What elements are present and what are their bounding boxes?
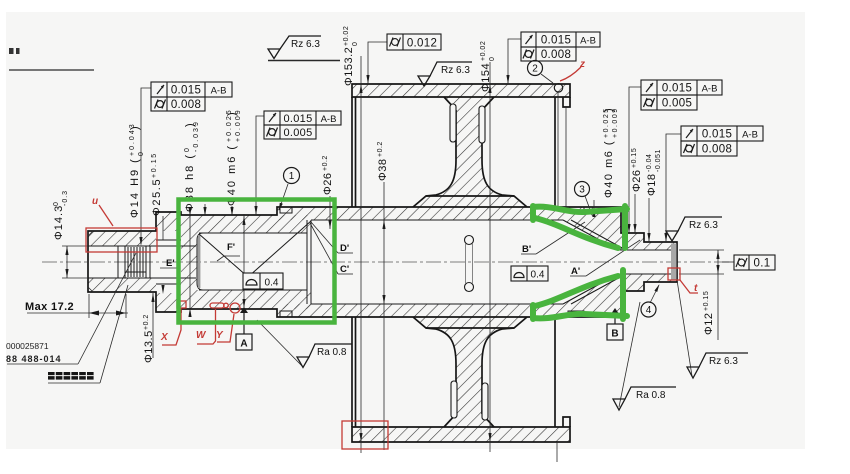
svg-text:0.015: 0.015: [283, 113, 312, 125]
svg-text:Rz 6.3: Rz 6.3: [689, 220, 718, 231]
svg-text:0: 0: [53, 201, 60, 206]
svg-text:Ra 0.8: Ra 0.8: [636, 390, 666, 401]
svg-text:Φ14 H9 (: Φ14 H9 (: [129, 157, 141, 218]
svg-text:X: X: [160, 332, 169, 343]
svg-text:2: 2: [532, 64, 538, 75]
svg-text:Φ153.2: Φ153.2: [343, 47, 355, 86]
svg-text:Max 17.2: Max 17.2: [25, 301, 74, 313]
svg-text:): ): [184, 121, 196, 127]
svg-text:Φ25.5: Φ25.5: [151, 178, 163, 216]
svg-text:Ra 0.8: Ra 0.8: [317, 347, 347, 358]
svg-text:0.012: 0.012: [407, 38, 437, 50]
svg-text:E': E': [166, 258, 175, 269]
svg-text:Φ26: Φ26: [322, 172, 334, 195]
svg-text:0: 0: [184, 146, 191, 152]
svg-text:Φ40 m6 (: Φ40 m6 (: [226, 144, 238, 206]
svg-text:+0.15: +0.15: [703, 291, 710, 311]
svg-text:0.008: 0.008: [541, 49, 571, 61]
svg-text:u: u: [92, 196, 98, 207]
svg-text:0.015: 0.015: [171, 85, 201, 97]
svg-text:000025871: 000025871: [6, 341, 49, 351]
svg-text:A-B: A-B: [321, 114, 337, 125]
svg-text:0.005: 0.005: [283, 127, 312, 139]
svg-text:Φ40 m6 (: Φ40 m6 (: [603, 140, 615, 198]
svg-text:0.015: 0.015: [541, 35, 571, 47]
svg-text:Φ38 h8 (: Φ38 h8 (: [184, 153, 196, 212]
svg-text:0.008: 0.008: [702, 144, 732, 156]
svg-text:A-B: A-B: [702, 84, 718, 95]
svg-text:Φ18: Φ18: [646, 173, 658, 196]
svg-text:0.008: 0.008: [171, 99, 201, 111]
svg-text:): ): [129, 124, 141, 130]
svg-text:A': A': [571, 266, 580, 277]
svg-text:0: 0: [138, 150, 145, 156]
svg-text:B': B': [522, 244, 531, 255]
svg-text:Φ13.5: Φ13.5: [143, 330, 155, 363]
svg-text:A: A: [240, 339, 247, 350]
svg-text:Rz 6.3: Rz 6.3: [291, 39, 320, 50]
svg-text:0.015: 0.015: [662, 83, 692, 95]
svg-text:+0.2: +0.2: [322, 155, 329, 171]
svg-text:C': C': [340, 264, 349, 275]
svg-text:): ): [226, 110, 238, 116]
svg-text:A-B: A-B: [742, 130, 758, 141]
svg-text:Φ12: Φ12: [703, 312, 715, 335]
svg-text:F': F': [227, 242, 235, 253]
svg-text:Rz 6.3: Rz 6.3: [709, 356, 738, 367]
svg-text:B: B: [611, 329, 618, 340]
svg-text:0.4: 0.4: [531, 270, 545, 281]
svg-text:W: W: [196, 330, 207, 341]
svg-text:Φ26: Φ26: [631, 169, 643, 192]
svg-text:-0.04: -0.04: [646, 154, 653, 172]
svg-text:0.1: 0.1: [754, 258, 771, 270]
svg-text:D': D': [340, 243, 349, 254]
svg-text:3: 3: [579, 185, 585, 196]
svg-text:+0.02: +0.02: [480, 41, 487, 61]
svg-text:Φ38: Φ38: [377, 158, 389, 181]
svg-text:): ): [603, 107, 615, 112]
svg-text:+0.2: +0.2: [143, 314, 150, 330]
svg-text:-0.051: -0.051: [655, 149, 662, 172]
svg-text:Rz 6.3: Rz 6.3: [441, 65, 470, 76]
svg-text:0: 0: [352, 42, 359, 46]
svg-text:+0.2: +0.2: [377, 141, 384, 157]
svg-text:+0.15: +0.15: [151, 152, 158, 178]
svg-text:Φ14.3: Φ14.3: [53, 205, 65, 240]
svg-text:1: 1: [289, 171, 295, 182]
svg-text:+0.15: +0.15: [631, 148, 638, 168]
svg-text:A-B: A-B: [211, 86, 227, 97]
svg-text:+0.02: +0.02: [343, 26, 350, 46]
svg-text:-0.3: -0.3: [62, 190, 69, 206]
svg-text:Φ154: Φ154: [480, 63, 492, 92]
svg-text:0.015: 0.015: [702, 129, 732, 141]
svg-text:4: 4: [646, 305, 652, 316]
svg-text:0.005: 0.005: [662, 98, 692, 110]
svg-text:88 488-014: 88 488-014: [6, 354, 62, 364]
svg-text:0: 0: [489, 57, 496, 61]
svg-text:z: z: [579, 59, 585, 70]
svg-text:A-B: A-B: [580, 36, 596, 47]
svg-text:0.4: 0.4: [265, 278, 279, 289]
